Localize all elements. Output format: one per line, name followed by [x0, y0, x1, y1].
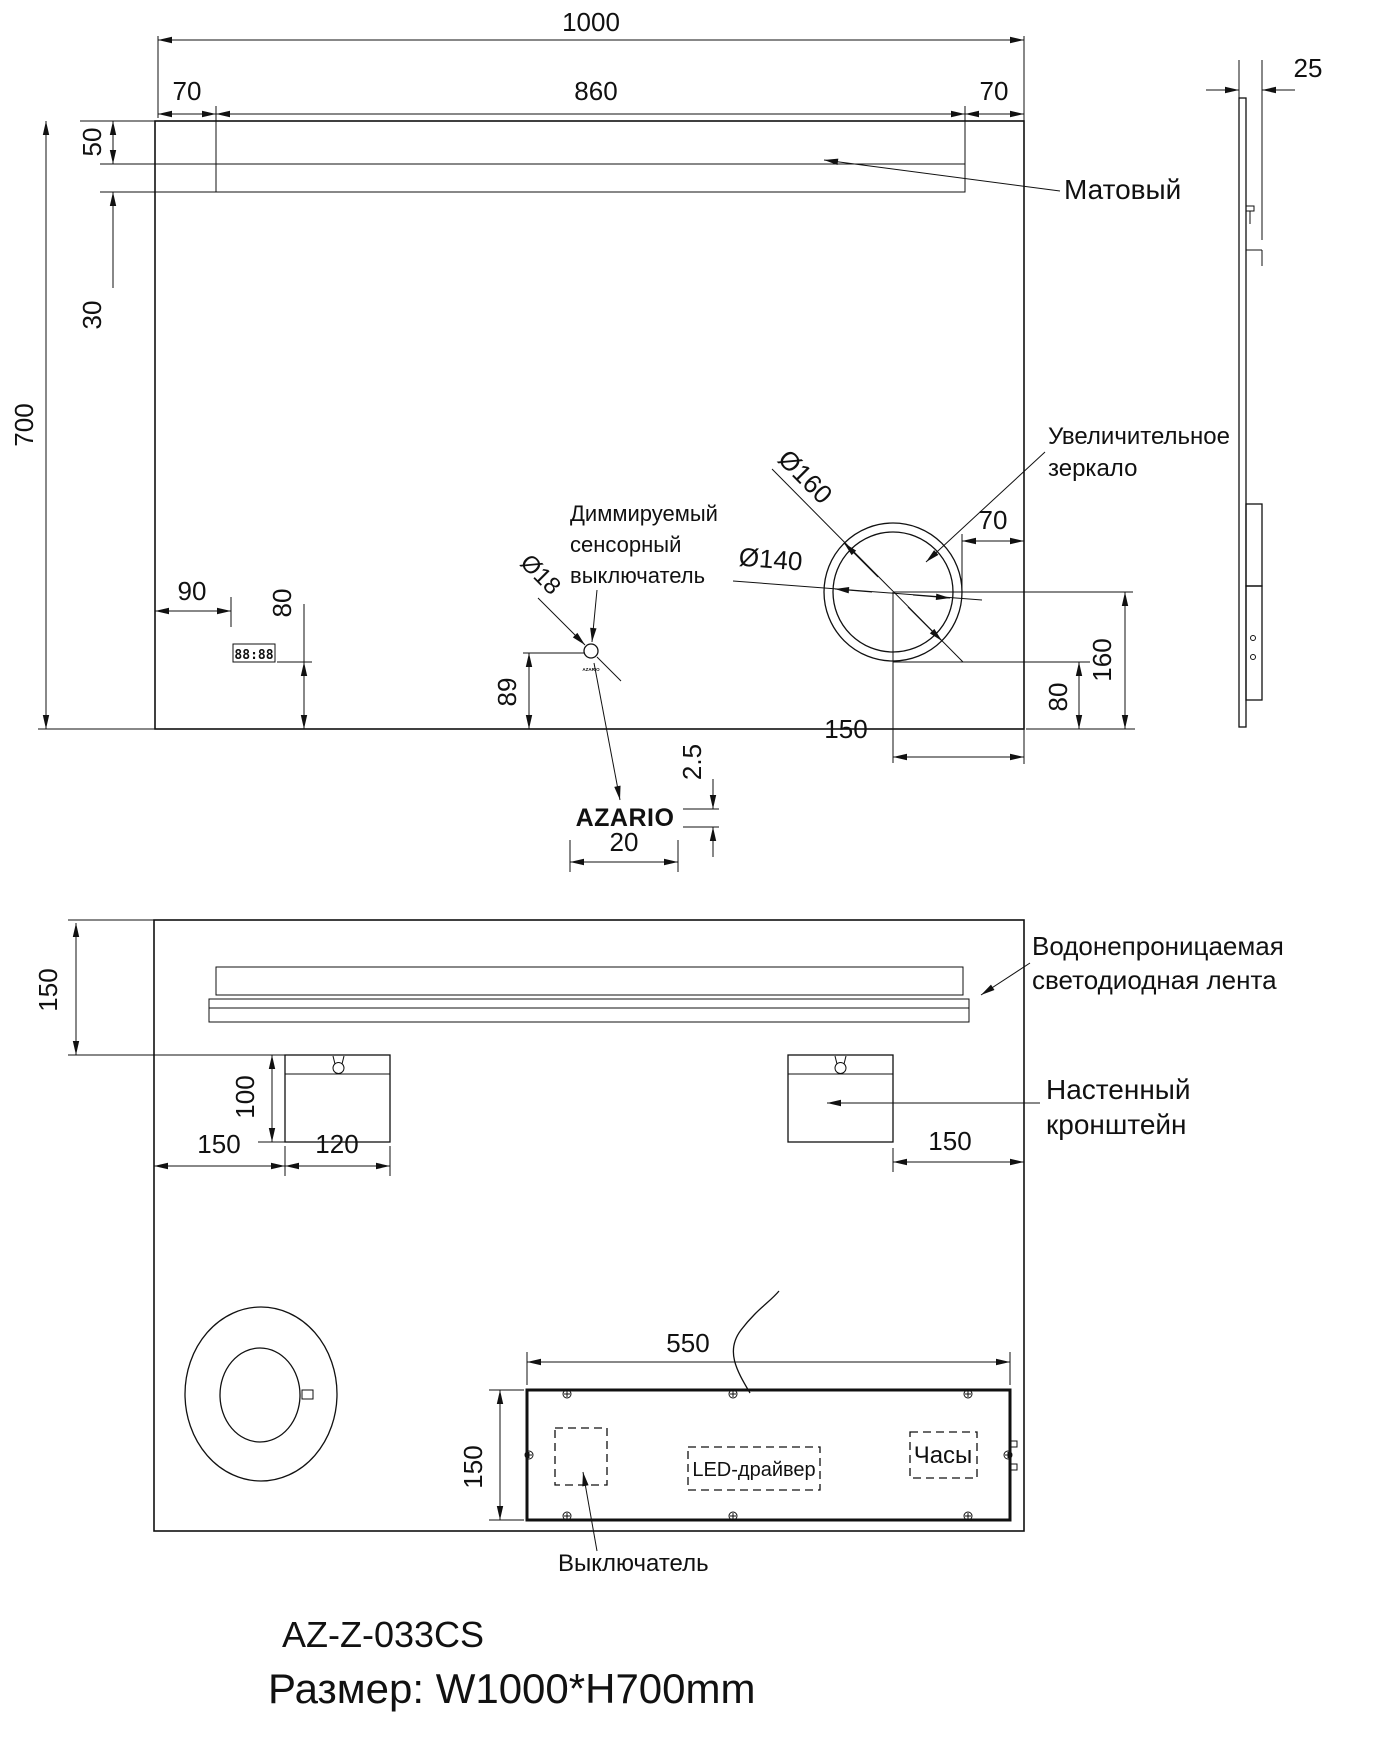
dim-bracket-width-label: 120 — [315, 1129, 358, 1159]
dim-mag-right-label: 70 — [979, 505, 1008, 535]
back-dimension-lines — [76, 923, 1024, 1520]
label-led-strip-2: светодиодная лента — [1032, 965, 1277, 995]
clock-digits: 88:88 — [234, 648, 273, 663]
wall-bracket-right — [788, 1055, 893, 1142]
switch-box — [555, 1428, 607, 1485]
label-switch-1: Диммируемый — [570, 501, 718, 526]
size-caption: Размер: W1000*H700mm — [268, 1665, 756, 1712]
dim-bracket-right-label: 150 — [928, 1126, 971, 1156]
label-switch-2: сенсорный — [570, 532, 681, 557]
label-bracket-1: Настенный — [1046, 1074, 1191, 1105]
dim-logo-width-label: 20 — [610, 827, 639, 857]
dim-led-top-label: 50 — [77, 128, 107, 157]
label-magnifier-1: Увеличительное — [1048, 423, 1230, 450]
matte-led-band — [216, 164, 965, 192]
dim-switch-dia-label: Ø18 — [515, 549, 566, 600]
model-number: AZ-Z-033CS — [282, 1614, 484, 1655]
label-switch-3: выключатель — [570, 563, 705, 588]
back-view: 150 100 150 120 150 550 150 Водонепрониц… — [33, 920, 1284, 1577]
front-view: AZARIO 88:88 AZARIO 1000 70 860 70 50 30… — [9, 7, 1230, 872]
side-back-boxes — [1246, 504, 1262, 700]
dim-mag-outer-label: Ø160 — [772, 444, 838, 510]
dim-switch-bottom-label: 89 — [492, 678, 522, 707]
touch-switch — [584, 644, 598, 658]
back-matte-band — [216, 967, 963, 995]
dim-logo-height-label: 2.5 — [677, 744, 707, 780]
dim-bracket-left-label: 150 — [197, 1129, 240, 1159]
dim-width-label: 1000 — [562, 7, 620, 37]
dim-height-label: 700 — [9, 403, 39, 446]
dim-led-height-label: 30 — [77, 301, 107, 330]
title-block: AZ-Z-033CS Размер: W1000*H700mm — [268, 1614, 756, 1712]
dim-bracket-height-label: 100 — [230, 1075, 260, 1118]
clock-display: 88:88 — [233, 644, 275, 663]
label-magnifier-2: зеркало — [1048, 455, 1137, 482]
front-extension-lines — [38, 36, 1135, 872]
dim-clock-bottom-label: 80 — [267, 589, 297, 618]
dim-mag-center-right-label: 150 — [824, 714, 867, 744]
label-clock-module: Часы — [914, 1442, 973, 1469]
dim-box-width-label: 550 — [666, 1328, 709, 1358]
drawing-page: AZARIO 88:88 AZARIO 1000 70 860 70 50 30… — [0, 0, 1382, 1744]
dim-mag-center-bottom-label: 160 — [1087, 638, 1117, 681]
front-dimension-lines — [46, 40, 1125, 862]
label-switch-back: Выключатель — [558, 1550, 709, 1577]
label-led-driver: LED-драйвер — [692, 1459, 815, 1481]
label-led-strip-1: Водонепроницаемая — [1032, 931, 1284, 961]
dim-led-width-label: 860 — [574, 76, 617, 106]
technical-drawing: AZARIO 88:88 AZARIO 1000 70 860 70 50 30… — [0, 0, 1382, 1744]
dim-depth-label: 25 — [1294, 53, 1323, 83]
touch-switch-logo: AZARIO — [582, 667, 600, 672]
led-strip-profile — [209, 1008, 969, 1022]
dim-box-height-label: 150 — [458, 1445, 488, 1488]
led-strip — [209, 999, 969, 1008]
dim-strip-top-label: 150 — [33, 968, 63, 1011]
dim-led-left-label: 70 — [173, 76, 202, 106]
magnifier-back — [185, 1307, 337, 1481]
mirror-back-outline — [154, 920, 1024, 1531]
mirror-front-outline — [155, 121, 1024, 729]
touch-switch-leaders — [538, 590, 621, 800]
mirror-side-profile — [1239, 98, 1246, 727]
side-view: 25 — [1206, 53, 1322, 727]
dim-mag-edge-bottom-label: 80 — [1043, 683, 1073, 712]
power-wire — [733, 1291, 779, 1393]
label-bracket-2: кронштейн — [1046, 1109, 1187, 1140]
side-bracket-details — [1246, 206, 1262, 266]
dim-led-right-label: 70 — [980, 76, 1009, 106]
label-matte: Матовый — [1064, 174, 1181, 205]
dim-clock-left-label: 90 — [178, 576, 207, 606]
dim-mag-inner-label: Ø140 — [738, 542, 804, 577]
